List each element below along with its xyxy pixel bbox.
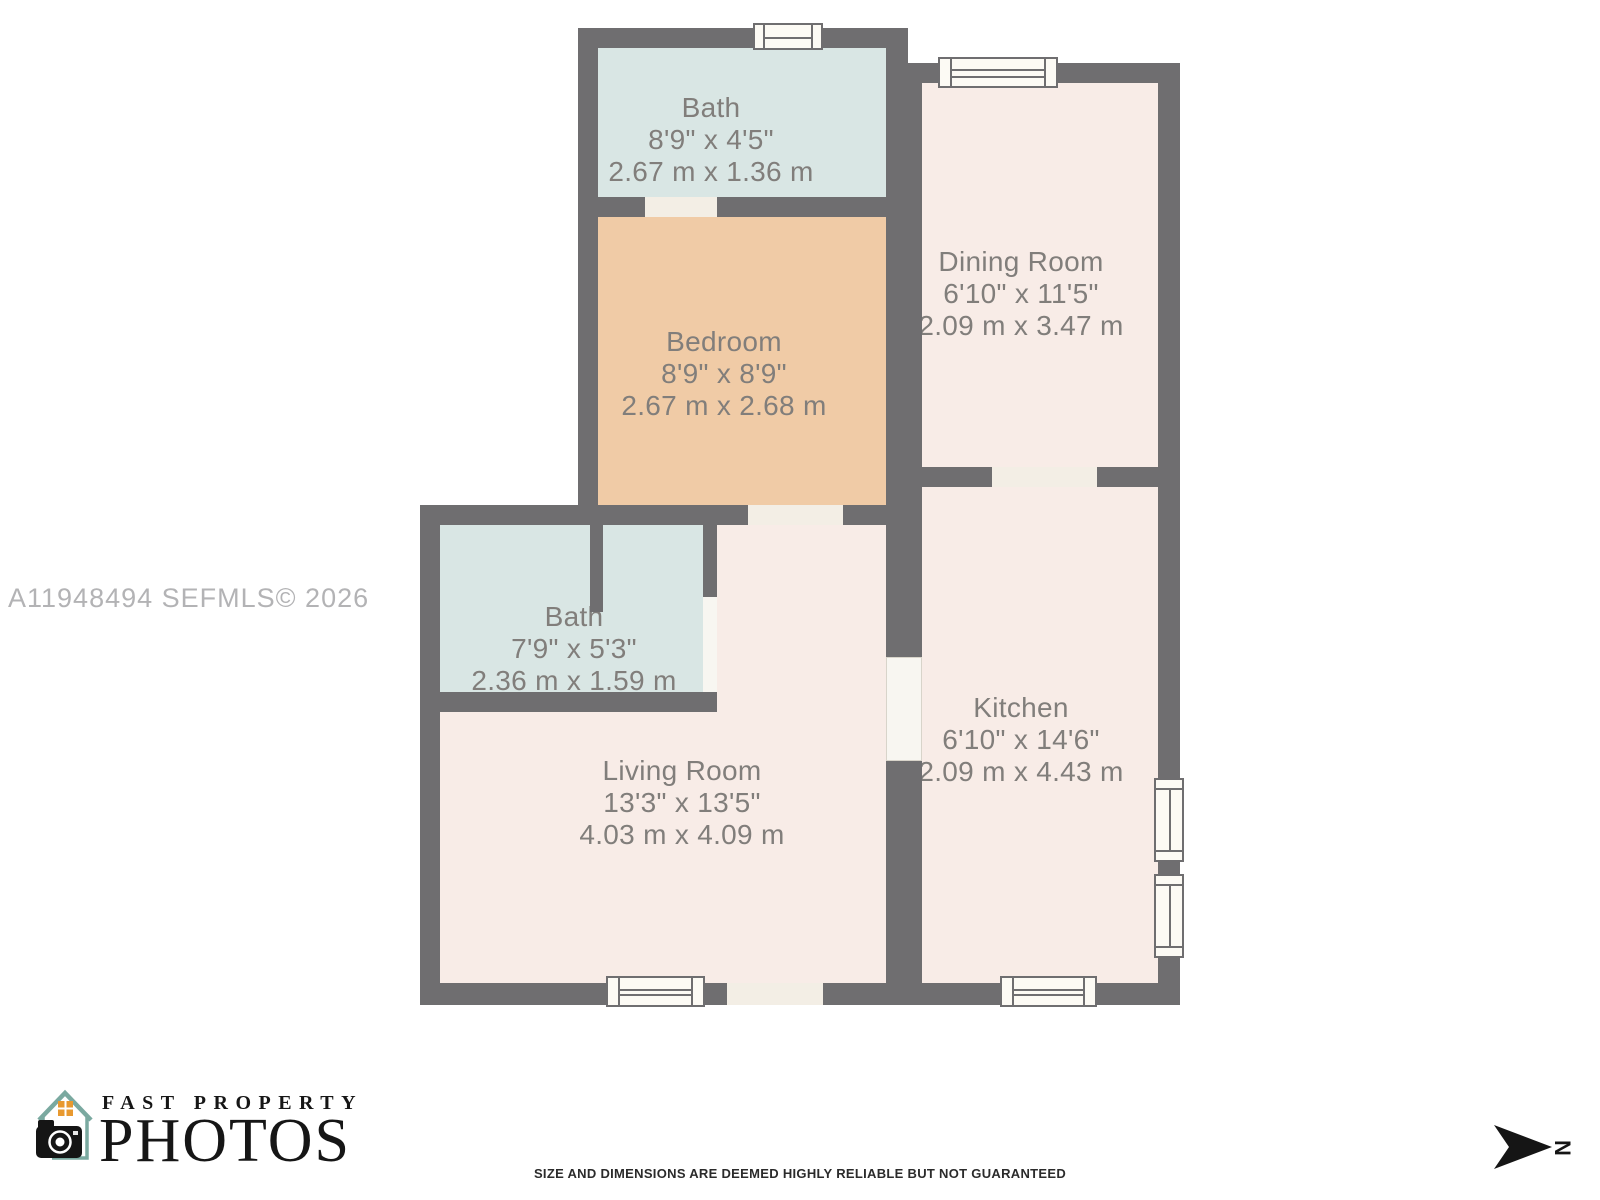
room-dims-ft: 8'9" x 4'5" [561, 124, 861, 156]
room-label-bath-lower: Bath 7'9" x 5'3" 2.36 m x 1.59 m [424, 601, 724, 697]
room-dims-ft: 8'9" x 8'9" [574, 358, 874, 390]
room-dims-m: 2.67 m x 2.68 m [574, 390, 874, 422]
wall-bath-lower-right [703, 513, 717, 597]
door-opening-bath-upper [645, 197, 717, 217]
wall-right-exterior [1158, 63, 1180, 1005]
room-label-bath-upper: Bath 8'9" x 4'5" 2.67 m x 1.36 m [561, 92, 861, 188]
north-label: N [1550, 1140, 1575, 1156]
room-dims-ft: 13'3" x 13'5" [532, 787, 832, 819]
window-dining-top [938, 57, 1058, 88]
opening-dining-kitchen [992, 467, 1097, 487]
wall-bath-lower-bottom [420, 692, 717, 712]
window-kitchen-right-lower [1154, 874, 1184, 958]
room-dims-ft: 7'9" x 5'3" [424, 633, 724, 665]
opening-living-kitchen [886, 657, 922, 761]
room-name: Living Room [532, 755, 832, 787]
room-label-living: Living Room 13'3" x 13'5" 4.03 m x 4.09 … [532, 755, 832, 851]
wall-center-vertical [886, 63, 922, 1005]
room-dining-kitchen-column [922, 83, 1158, 985]
room-label-bedroom: Bedroom 8'9" x 8'9" 2.67 m x 2.68 m [574, 326, 874, 422]
room-dims-m: 2.67 m x 1.36 m [561, 156, 861, 188]
logo-text-line2: PHOTOS [99, 1110, 351, 1172]
logo-camera-icon [36, 1120, 82, 1158]
door-opening-living-bottom [727, 983, 823, 1005]
wall-left-exterior-lower [420, 505, 440, 1005]
window-living-bottom [606, 976, 705, 1007]
wall-bath-bedroom-divider [598, 197, 886, 217]
window-kitchen-right-upper [1154, 778, 1184, 862]
logo-window-panes [58, 1101, 73, 1116]
wall-top-bath-block [578, 28, 908, 48]
window-kitchen-bottom [1000, 976, 1097, 1007]
mls-watermark: A11948494 SEFMLS© 2026 [8, 583, 369, 614]
wall-mid-horizontal [420, 505, 922, 525]
wall-corner-upper-right [886, 28, 908, 68]
room-name: Bedroom [574, 326, 874, 358]
room-name: Bath [561, 92, 861, 124]
door-opening-bedroom [748, 505, 843, 525]
room-dims-m: 4.03 m x 4.09 m [532, 819, 832, 851]
window-bath-upper [753, 23, 823, 50]
logo-house-camera-icon [36, 1086, 98, 1164]
north-arrow-icon: N [1492, 1120, 1582, 1174]
disclaimer-text: SIZE AND DIMENSIONS ARE DEEMED HIGHLY RE… [400, 1166, 1200, 1181]
wall-left-bath-block [578, 28, 598, 525]
door-opening-bath-lower [703, 597, 717, 692]
room-name: Bath [424, 601, 724, 633]
wall-bath-lower-partition [590, 525, 603, 612]
